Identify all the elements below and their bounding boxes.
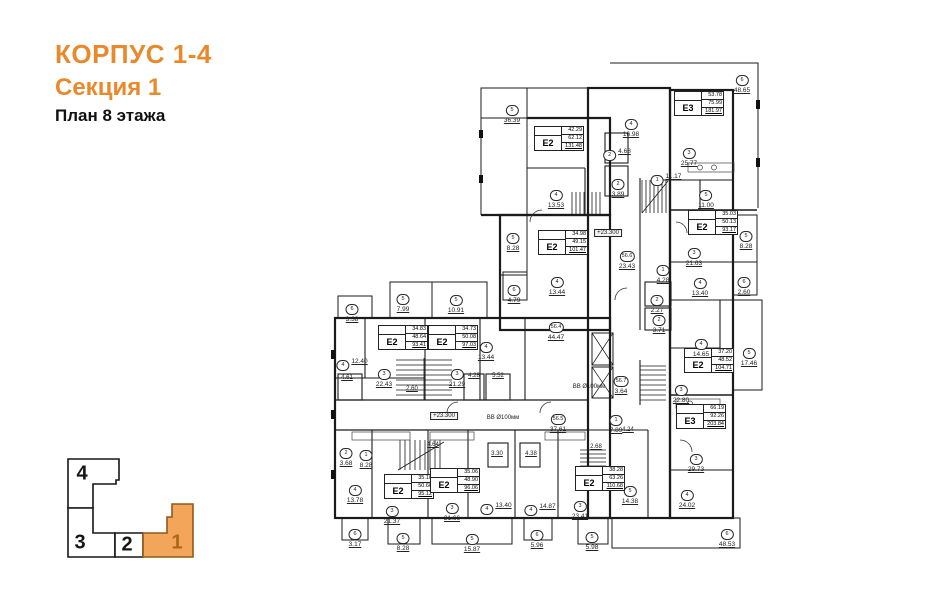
room-label: 23.71 — [653, 308, 666, 334]
room-number: 3 — [446, 503, 459, 514]
room-area: 22.80 — [673, 397, 689, 404]
room-label: 2.60 — [406, 385, 418, 392]
unit-type: E2 — [576, 475, 603, 490]
unit-area: 96.06 — [458, 485, 479, 492]
room-label: 63.38 — [346, 297, 359, 323]
room-number: 1 — [360, 450, 373, 461]
room-number: 6 — [346, 304, 359, 315]
room-number: 4 — [480, 504, 493, 515]
room-number: 4 — [336, 360, 349, 371]
room-label: 322.43 — [376, 362, 392, 388]
unit-table: E234.8348.6493.41 — [378, 325, 428, 350]
room-area: 21.37 — [384, 518, 400, 525]
unit-area: 34.98 — [566, 231, 587, 239]
unit-area: 75.99 — [702, 100, 723, 108]
room-number: 1 — [651, 175, 664, 186]
room-number: 5 — [397, 294, 410, 305]
room-area: 13.53 — [548, 202, 564, 209]
room-label: 325.77 — [681, 141, 697, 167]
unit-area: 97.03 — [456, 342, 477, 349]
room-label: 329.73 — [688, 447, 704, 473]
unit-table: E234.9849.15101.47 — [538, 230, 588, 255]
room-label: 648.53 — [719, 522, 735, 548]
room-area: 4.24 — [622, 427, 634, 433]
room-area: 13.40 — [692, 290, 708, 297]
unit-area: 93.41 — [406, 342, 427, 349]
room-area: 8.28 — [397, 545, 410, 552]
room-label: 111.17 — [651, 168, 682, 186]
unit-type: E2 — [385, 483, 412, 498]
room-number: 5 — [450, 295, 463, 306]
room-area: 14.87 — [539, 503, 555, 510]
room-area: 15.87 — [464, 546, 480, 553]
unit-area: 92.26 — [704, 413, 725, 421]
room-number: 4 — [695, 339, 708, 350]
room-area: 13.44 — [549, 289, 565, 296]
room-number: 4 — [551, 277, 564, 288]
unit-area: 63.26 — [603, 475, 624, 483]
room-area: 23.43 — [619, 263, 635, 270]
room-label: 57.99 — [397, 287, 410, 313]
elevation-mark: +23.300 — [430, 412, 458, 420]
unit-table: E234.7350.0897.03 — [428, 325, 478, 350]
room-area: 25.77 — [681, 160, 697, 167]
room-number: 4 — [550, 190, 563, 201]
unit-type: E2 — [685, 357, 712, 372]
room-number: 2 — [603, 150, 616, 161]
room-area: 5.52 — [492, 373, 504, 379]
room-area: 4.79 — [508, 297, 521, 304]
unit-table: E235.1050.6695.12 — [384, 474, 434, 499]
room-label: 56.537.61 — [550, 407, 566, 433]
unit-type: E2 — [429, 334, 456, 349]
room-area: 4.64 — [427, 442, 439, 448]
room-label: 321.63 — [686, 241, 702, 267]
room-number: 2 — [651, 295, 664, 306]
pipe-note: ВВ Ø100мм — [573, 383, 606, 390]
room-label: 23.68 — [340, 441, 353, 467]
unit-area: 50.08 — [456, 334, 477, 342]
room-number: 4 — [524, 505, 537, 516]
room-label: 23.89 — [612, 172, 625, 198]
unit-table: E235.0350.1393.17 — [688, 210, 738, 235]
room-number: 5 — [506, 105, 519, 116]
room-label: 536.39 — [504, 98, 520, 124]
room-number: 6 — [721, 529, 734, 540]
unit-table: E366.1992.26203.84 — [676, 404, 726, 429]
room-number: 5 — [397, 533, 410, 544]
room-label: 514.38 — [622, 479, 638, 505]
room-area: 7.99 — [397, 306, 410, 313]
room-area: 16.98 — [623, 131, 639, 138]
room-label: 58.28 — [397, 526, 410, 552]
room-area: 37.61 — [550, 426, 566, 433]
room-number: 3 — [675, 385, 688, 396]
unit-area: 110.68 — [603, 483, 624, 490]
room-number: 5 — [586, 532, 599, 543]
room-label: 2.68 — [590, 443, 602, 450]
room-area: 44.47 — [548, 334, 564, 341]
room-label: 24.68 — [603, 143, 631, 161]
room-label: 413.40 — [480, 497, 511, 515]
room-number: 56.5 — [551, 414, 566, 425]
room-label: 414.65 — [693, 332, 709, 358]
unit-type: E2 — [535, 135, 562, 150]
unit-area: 50.13 — [716, 219, 737, 227]
unit-table: E235.0648.9096.06 — [430, 468, 480, 493]
room-label: 322.80 — [673, 378, 689, 404]
room-area: 4.61 — [341, 375, 353, 381]
room-area: 14.38 — [622, 498, 638, 505]
room-label: 65.96 — [531, 523, 544, 549]
room-area: 21.63 — [686, 260, 702, 267]
room-area: 29.73 — [688, 466, 704, 473]
room-area: 11.17 — [666, 173, 682, 180]
room-label: 62.60 — [738, 270, 751, 296]
unit-type: E2 — [431, 477, 458, 492]
room-area: 4.68 — [618, 148, 631, 155]
room-label: 321.37 — [384, 499, 400, 525]
unit-area: 131.48 — [562, 143, 583, 150]
room-number: 1 — [657, 265, 670, 276]
elevation-mark: +23.300 — [594, 229, 622, 237]
room-label: 323.41 — [572, 494, 588, 520]
room-label: 412.40 — [336, 353, 367, 371]
room-number: 56.7 — [614, 376, 629, 387]
room-number: 6 — [531, 530, 544, 541]
unit-area: 104.71 — [712, 365, 733, 372]
floorplan-drawing — [0, 0, 941, 600]
unit-area: 35.06 — [458, 469, 479, 477]
room-label: 5.52 — [492, 372, 504, 379]
room-number: 3 — [683, 148, 696, 159]
unit-area: 49.15 — [566, 239, 587, 247]
page: { "header": { "building": "КОРПУС 1-4", … — [0, 0, 941, 600]
room-number: 5 — [699, 190, 712, 201]
unit-table: E242.2962.12131.48 — [534, 126, 584, 151]
room-label: 321.29 — [449, 362, 465, 388]
room-area: 2.68 — [590, 444, 602, 450]
room-label: 4.28 — [468, 372, 480, 379]
room-area: 48.65 — [734, 87, 750, 94]
room-label: 55.98 — [586, 525, 599, 551]
room-area: 5.98 — [586, 544, 599, 551]
room-label: 58.28 — [740, 224, 753, 250]
room-area: 4.28 — [468, 373, 480, 379]
room-area: ВВ Ø100мм — [487, 415, 520, 421]
unit-area: 48.64 — [406, 334, 427, 342]
unit-area: 48.52 — [712, 357, 733, 365]
room-area: 3.71 — [653, 327, 666, 334]
room-label: 510.91 — [448, 288, 464, 314]
room-number: 6 — [736, 75, 749, 86]
room-area: 3.38 — [346, 316, 359, 323]
room-label: 4.24 — [622, 426, 634, 433]
unit-table: E353.7875.99181.97 — [674, 91, 724, 116]
room-label: 4.61 — [341, 374, 353, 381]
room-number: 6 — [508, 285, 521, 296]
room-area: 24.02 — [679, 502, 695, 509]
room-area: 8.28 — [507, 245, 520, 252]
room-label: 56.444.47 — [548, 315, 564, 341]
room-label: 14.28 — [657, 258, 670, 284]
room-area: 23.41 — [572, 513, 588, 520]
room-number: 6 — [349, 529, 362, 540]
unit-area: 42.29 — [562, 127, 583, 135]
unit-type: E2 — [539, 239, 566, 254]
room-label: 413.40 — [692, 271, 708, 297]
unit-area: 53.78 — [702, 92, 723, 100]
room-label: 4.38 — [525, 450, 537, 457]
pipe-note: ВВ Ø100мм — [487, 414, 520, 421]
room-number: 5 — [507, 233, 520, 244]
room-label: 413.53 — [548, 183, 564, 209]
room-area: 36.39 — [504, 117, 520, 124]
room-number: 5 — [740, 231, 753, 242]
unit-area: 48.90 — [458, 477, 479, 485]
room-label: 648.65 — [734, 68, 750, 94]
room-label: 416.98 — [623, 112, 639, 138]
room-area: 21.66 — [444, 515, 460, 522]
room-number: 6 — [738, 277, 751, 288]
room-area: 13.78 — [347, 497, 363, 504]
room-area: 14.65 — [693, 351, 709, 358]
room-area: 4.38 — [525, 451, 537, 457]
room-label: 64.79 — [508, 278, 521, 304]
unit-area: 37.20 — [712, 349, 733, 357]
unit-type: E2 — [689, 219, 716, 234]
room-label: 414.87 — [524, 498, 555, 516]
room-number: 4 — [681, 490, 694, 501]
room-label: 3.30 — [491, 450, 503, 457]
room-area: 3.17 — [349, 541, 362, 548]
room-label: 424.02 — [679, 483, 695, 509]
room-number: 3 — [378, 369, 391, 380]
room-area: 3.30 — [491, 451, 503, 457]
unit-area: 34.73 — [456, 326, 477, 334]
unit-area: 38.28 — [603, 467, 624, 475]
unit-table: E238.2863.26110.68 — [575, 466, 625, 491]
room-label: 413.44 — [549, 270, 565, 296]
unit-area: 203.84 — [704, 421, 725, 428]
room-number: 1 — [610, 415, 623, 426]
room-area: 17.46 — [741, 360, 757, 367]
room-number: 3 — [451, 369, 464, 380]
room-number: 5 — [466, 534, 479, 545]
room-area: 11.00 — [698, 202, 714, 209]
unit-type: E3 — [677, 413, 704, 428]
room-area: 7.89 — [610, 427, 623, 434]
unit-area: 101.47 — [566, 247, 587, 254]
unit-area: 66.19 — [704, 405, 725, 413]
room-label: 511.00 — [698, 183, 714, 209]
room-number: 2 — [612, 179, 625, 190]
room-number: 5 — [743, 348, 756, 359]
room-area: ВВ Ø100мм — [573, 384, 606, 390]
room-label: 63.17 — [349, 522, 362, 548]
room-area: 2.60 — [738, 289, 751, 296]
room-area: 8.28 — [740, 243, 753, 250]
room-number: 56.4 — [549, 322, 564, 333]
room-label: 517.46 — [741, 341, 757, 367]
room-label: 18.28 — [360, 443, 373, 469]
room-number: 2 — [340, 448, 353, 459]
room-area: 2.60 — [406, 386, 418, 392]
room-label: 413.44 — [478, 335, 494, 361]
room-area: 3.89 — [612, 191, 625, 198]
room-label: 17.89 — [610, 408, 623, 434]
room-label: 321.66 — [444, 496, 460, 522]
room-number: 4 — [625, 119, 638, 130]
room-area: 13.44 — [478, 354, 494, 361]
room-area: 3.64 — [614, 388, 629, 395]
room-area: 13.40 — [495, 502, 511, 509]
unit-area: 93.17 — [716, 227, 737, 234]
room-area: 5.96 — [531, 542, 544, 549]
room-area: 3.68 — [340, 460, 353, 467]
room-area: 48.53 — [719, 541, 735, 548]
room-label: 4.64 — [427, 441, 439, 448]
room-label: 56.623.43 — [619, 244, 635, 270]
room-label: 515.87 — [464, 527, 480, 553]
room-number: 3 — [688, 248, 701, 259]
room-area: 21.29 — [449, 381, 465, 388]
unit-type: E3 — [675, 100, 702, 115]
room-number: 5 — [624, 486, 637, 497]
room-number: 4 — [349, 485, 362, 496]
unit-area: 181.97 — [702, 108, 723, 115]
unit-area: 35.03 — [716, 211, 737, 219]
room-number: 56.6 — [620, 251, 635, 262]
room-number: 3 — [386, 506, 399, 517]
room-number: 4 — [480, 342, 493, 353]
room-area: 12.40 — [351, 358, 367, 365]
room-number: 3 — [690, 454, 703, 465]
room-number: 3 — [574, 501, 587, 512]
room-area: 10.91 — [448, 307, 464, 314]
room-number: 4 — [694, 278, 707, 289]
room-label: 58.28 — [507, 226, 520, 252]
room-area: 4.28 — [657, 277, 670, 284]
room-number: 2 — [653, 315, 666, 326]
room-area: 22.43 — [376, 381, 392, 388]
room-area: 8.28 — [360, 462, 373, 469]
unit-area: 34.83 — [406, 326, 427, 334]
unit-area: 62.12 — [562, 135, 583, 143]
room-label: 413.78 — [347, 478, 363, 504]
room-label: 56.73.64 — [614, 369, 629, 395]
unit-type: E2 — [379, 334, 406, 349]
